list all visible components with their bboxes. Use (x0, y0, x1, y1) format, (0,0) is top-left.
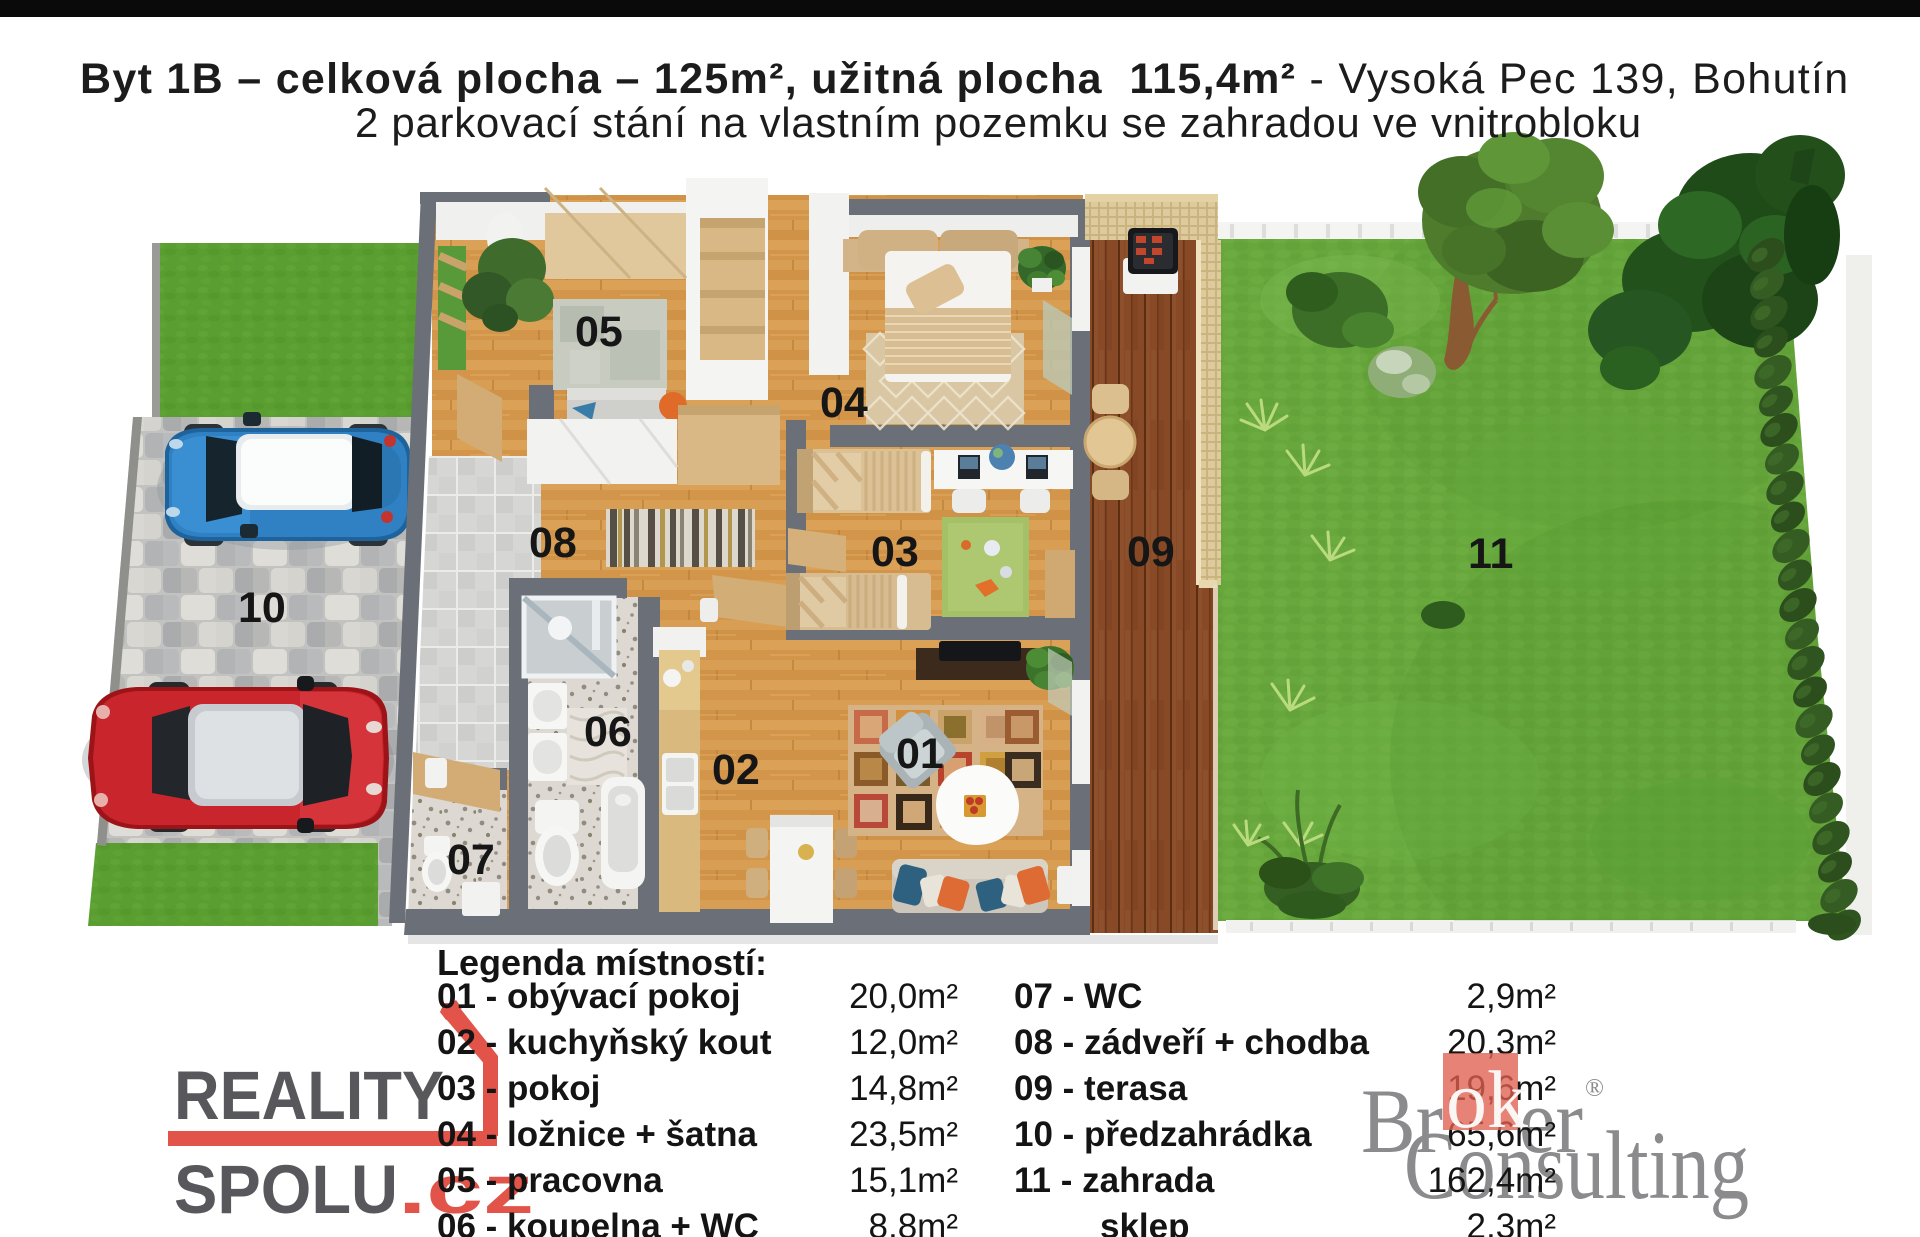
svg-text:ok: ok (1446, 1054, 1528, 1145)
